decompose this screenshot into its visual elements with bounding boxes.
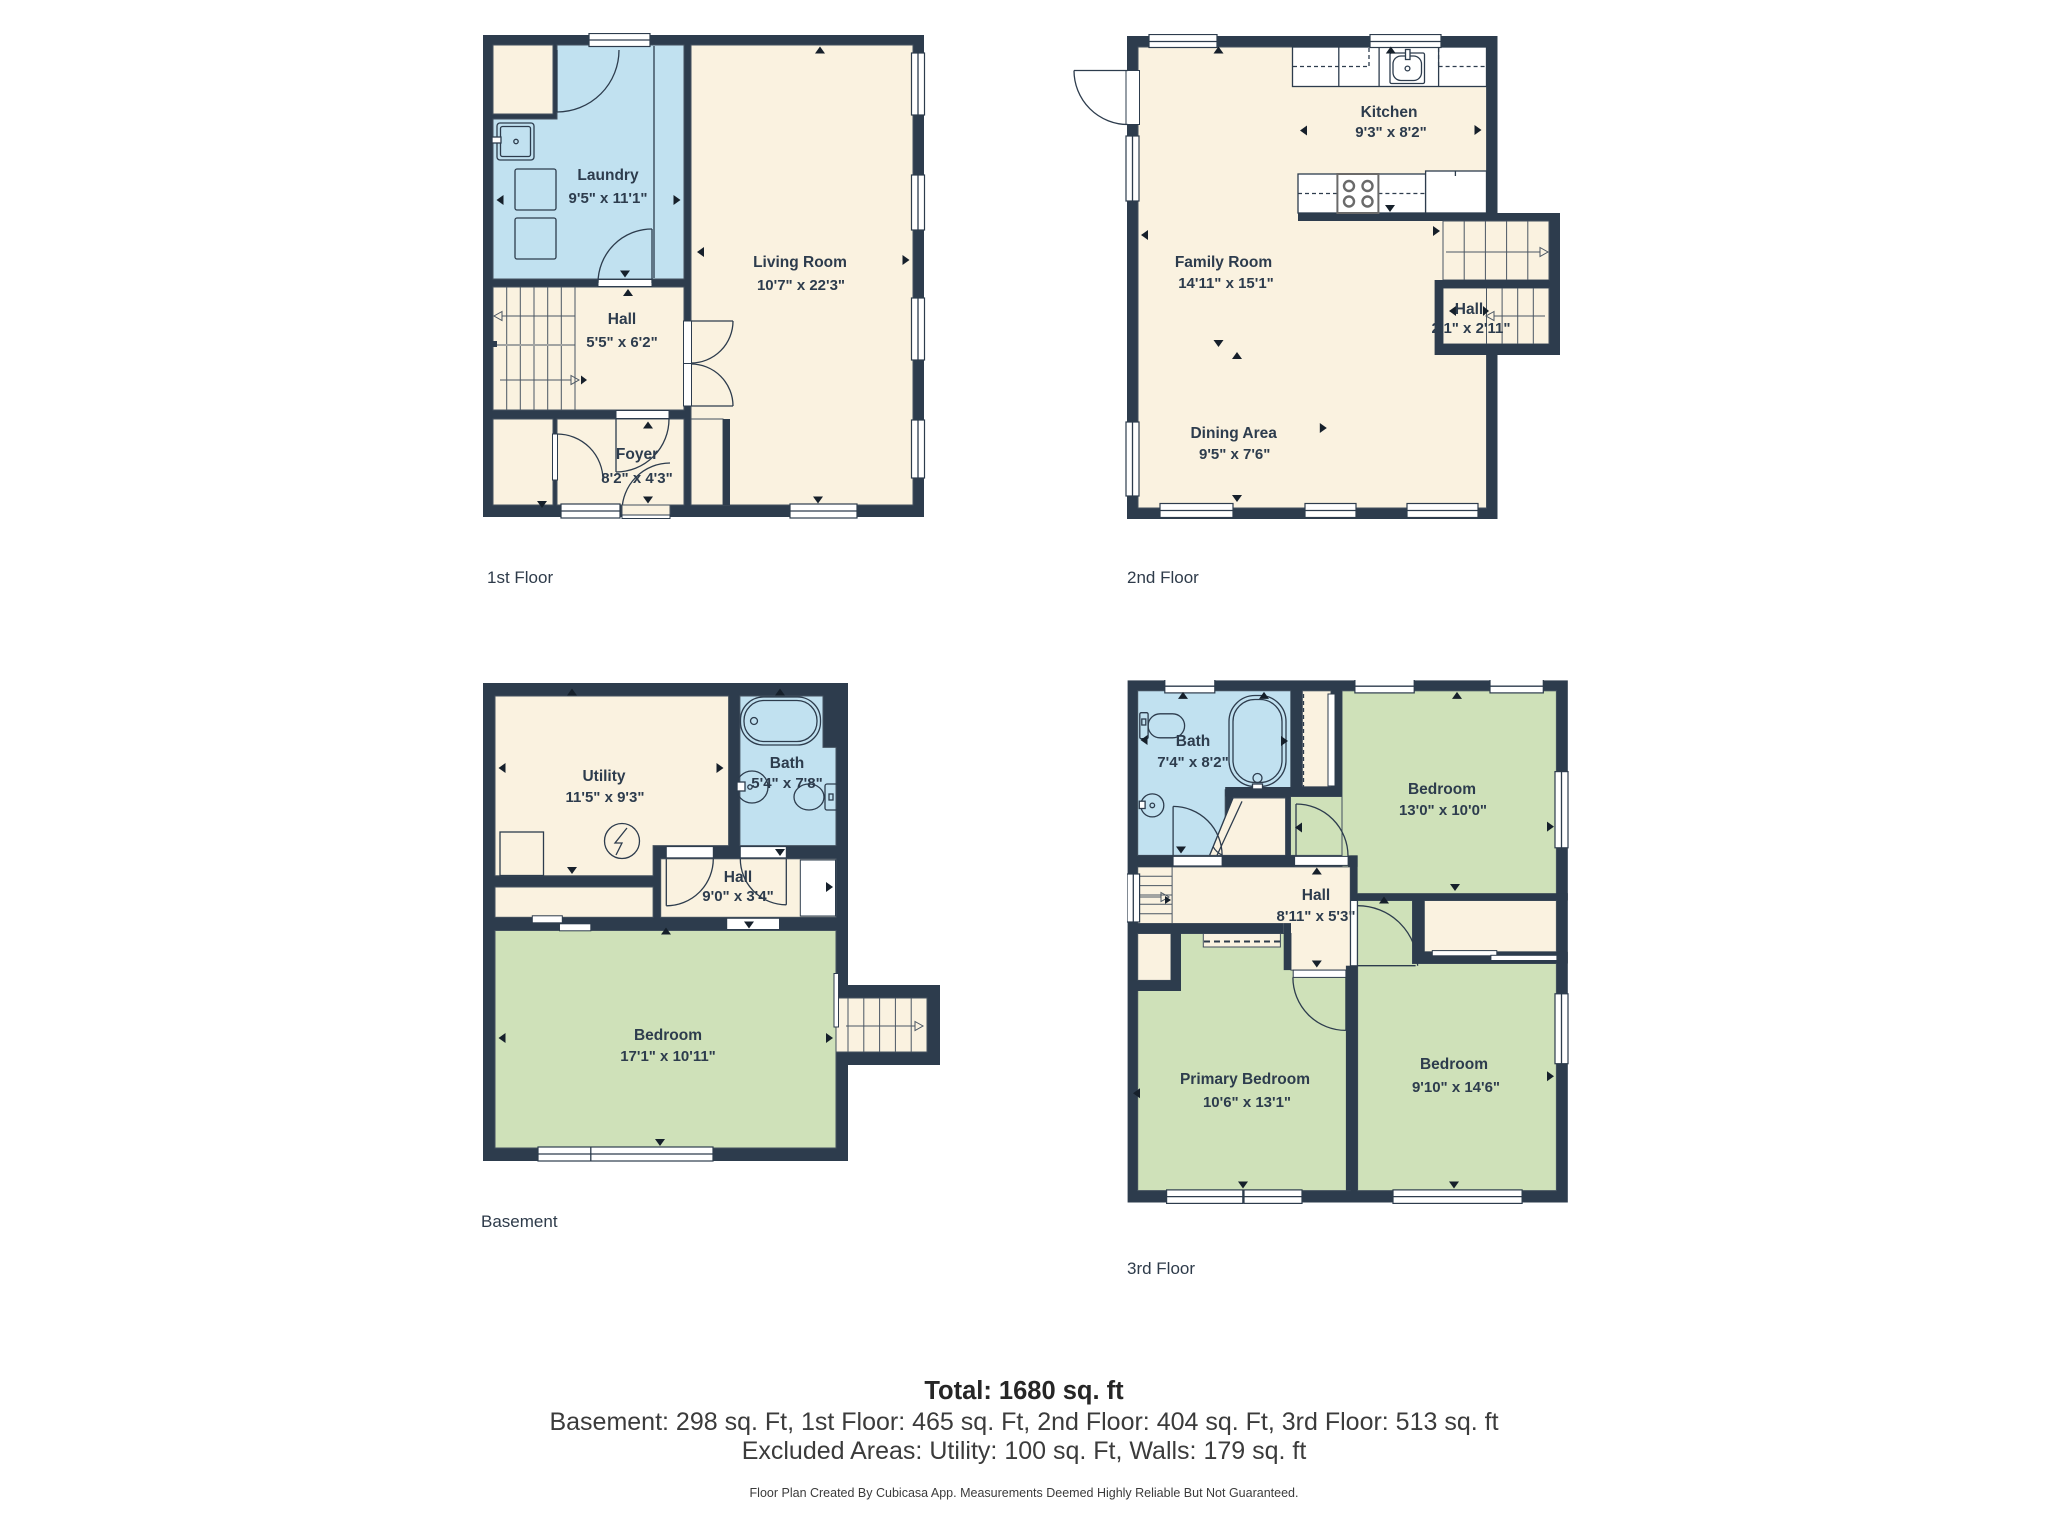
svg-text:Primary Bedroom: Primary Bedroom (1180, 1071, 1310, 1088)
svg-text:8'2" x 4'3": 8'2" x 4'3" (601, 470, 672, 487)
svg-text:7'4" x 8'2": 7'4" x 8'2" (1157, 754, 1228, 771)
svg-text:9'5" x 11'1": 9'5" x 11'1" (569, 190, 648, 207)
svg-text:5'4" x 7'8": 5'4" x 7'8" (751, 775, 822, 792)
svg-text:Family Room: Family Room (1175, 254, 1272, 271)
svg-text:Bath: Bath (770, 755, 804, 772)
svg-text:Dining Area: Dining Area (1190, 425, 1277, 442)
svg-text:8'11" x 5'3": 8'11" x 5'3" (1277, 908, 1356, 925)
svg-text:Hall: Hall (1455, 301, 1483, 318)
svg-text:Kitchen: Kitchen (1361, 104, 1418, 121)
svg-text:10'7" x 22'3": 10'7" x 22'3" (757, 277, 845, 294)
svg-text:10'6" x 13'1": 10'6" x 13'1" (1203, 1094, 1291, 1111)
svg-text:17'1" x 10'11": 17'1" x 10'11" (620, 1048, 716, 1065)
svg-text:Bedroom: Bedroom (1408, 781, 1476, 798)
svg-text:13'0" x 10'0": 13'0" x 10'0" (1399, 802, 1487, 819)
svg-text:Laundry: Laundry (577, 167, 639, 184)
svg-text:9'3" x 8'2": 9'3" x 8'2" (1355, 124, 1426, 141)
svg-text:2'1" x 2'11": 2'1" x 2'11" (1432, 320, 1511, 337)
svg-text:Hall: Hall (1302, 887, 1330, 904)
svg-text:Utility: Utility (582, 768, 625, 785)
svg-text:Hall: Hall (608, 311, 636, 328)
svg-text:Bedroom: Bedroom (634, 1027, 702, 1044)
svg-text:5'5" x 6'2": 5'5" x 6'2" (586, 334, 657, 351)
svg-text:9'5" x 7'6": 9'5" x 7'6" (1199, 446, 1270, 463)
svg-text:Living Room: Living Room (753, 254, 847, 271)
svg-text:Foyer: Foyer (616, 446, 658, 463)
svg-text:9'0" x 3'4": 9'0" x 3'4" (702, 888, 773, 905)
svg-text:14'11" x 15'1": 14'11" x 15'1" (1178, 275, 1274, 292)
svg-text:11'5" x 9'3": 11'5" x 9'3" (566, 789, 645, 806)
svg-text:Hall: Hall (724, 869, 752, 886)
svg-text:9'10" x 14'6": 9'10" x 14'6" (1412, 1079, 1500, 1096)
svg-text:Bath: Bath (1176, 733, 1210, 750)
svg-text:Bedroom: Bedroom (1420, 1056, 1488, 1073)
